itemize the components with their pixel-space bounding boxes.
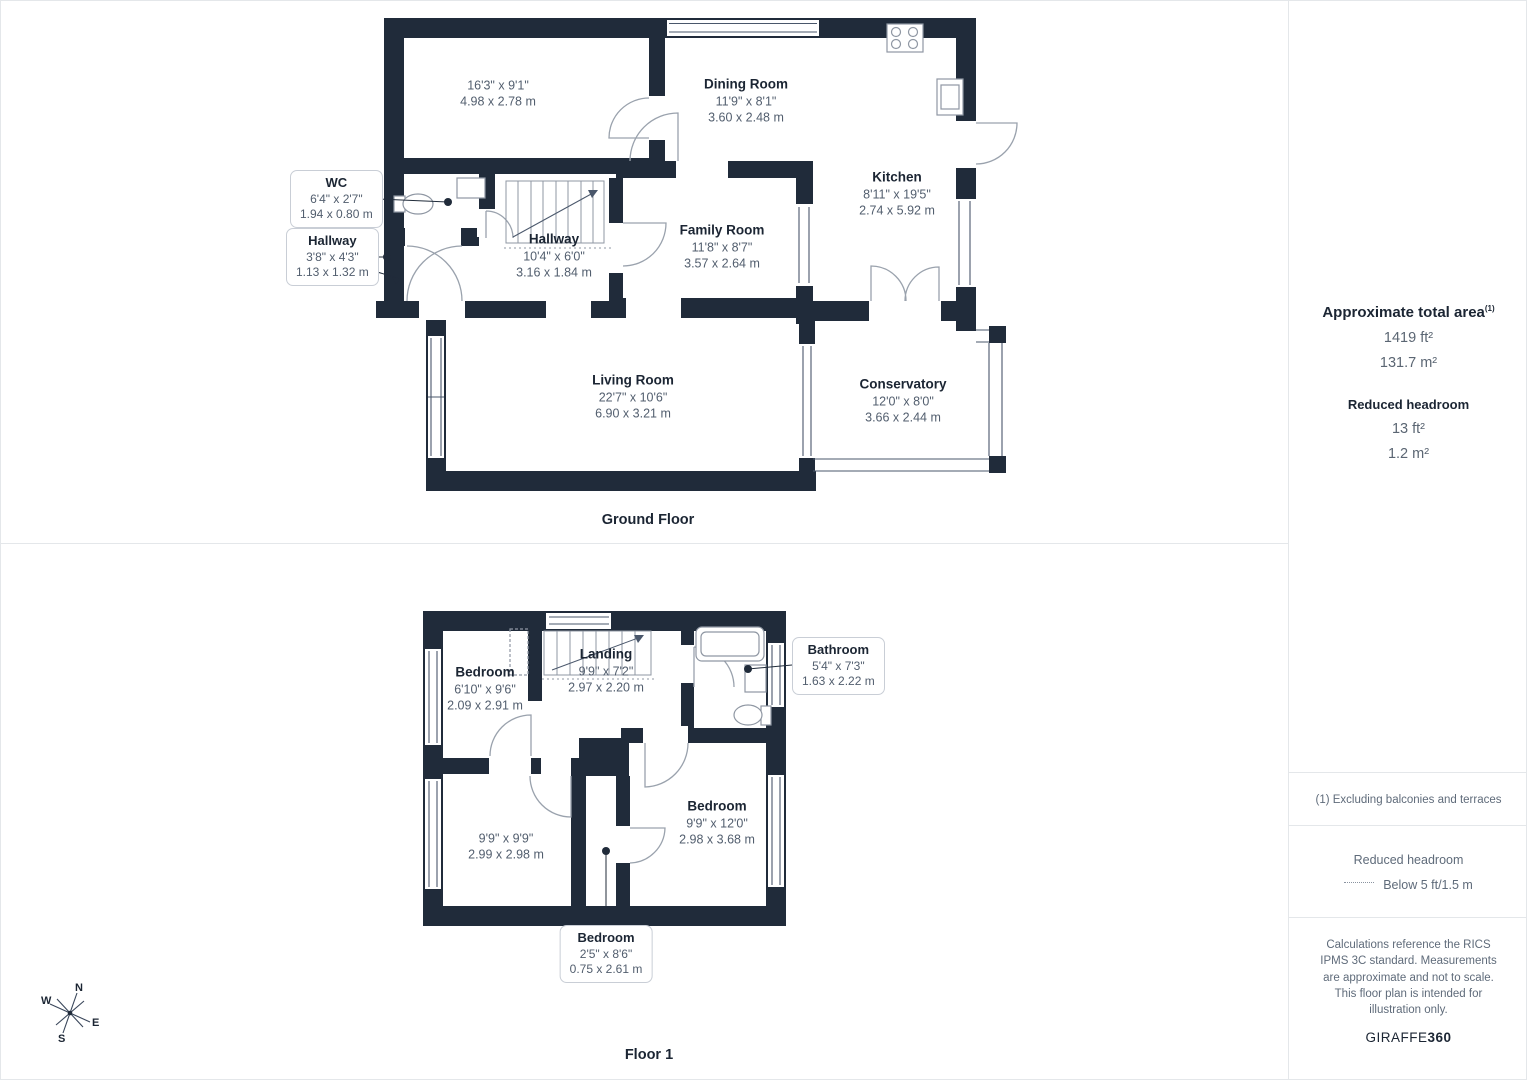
total-area-title: Approximate total area(1) — [1289, 304, 1527, 321]
compass-n: N — [75, 982, 83, 994]
sidebar-divider — [1289, 825, 1527, 826]
dotted-line-icon — [1344, 882, 1374, 883]
giraffe360-logo: GIRAFFE360 — [1289, 1030, 1527, 1045]
f1-leader-lines — [602, 665, 792, 921]
disclaimer-text: Calculations reference the RICS IPMS 3C … — [1317, 937, 1500, 1019]
reduced-headroom-ft: 13 ft² — [1289, 421, 1527, 437]
compass-star — [31, 976, 111, 1056]
room-label-hallway: Hallway 10'4" x 6'0" 3.16 x 1.84 m — [516, 231, 592, 280]
callout-wc: WC 6'4" x 2'7" 1.94 x 0.80 m — [290, 170, 383, 228]
room-label-conservatory: Conservatory 12'0" x 8'0" 3.66 x 2.44 m — [859, 376, 946, 425]
floor1-plan — [1, 543, 1288, 1080]
wc-sink-icon — [457, 178, 485, 198]
area-summary: Approximate total area(1) 1419 ft² 131.7… — [1289, 304, 1527, 462]
legend-title: Reduced headroom — [1289, 853, 1527, 867]
floor1-title: Floor 1 — [625, 1047, 673, 1063]
room-label-dining-room: Dining Room 11'9" x 8'1" 3.60 x 2.48 m — [704, 76, 788, 125]
stove-icon — [887, 24, 923, 52]
callout-bedroom-small: Bedroom 2'5" x 8'6" 0.75 x 2.61 m — [560, 925, 653, 983]
callout-bathroom: Bathroom 5'4" x 7'3" 1.63 x 2.22 m — [792, 637, 885, 695]
reduced-headroom-m: 1.2 m² — [1289, 446, 1527, 462]
room-label-family-room: Family Room 11'8" x 8'7" 3.57 x 2.64 m — [680, 222, 765, 271]
room-label-kitchen: Kitchen 8'11" x 19'5" 2.74 x 5.92 m — [859, 169, 935, 218]
sidebar-divider — [1289, 917, 1527, 918]
room-label-bedroom-bottomright: Bedroom 9'9" x 12'0" 2.98 x 3.68 m — [679, 798, 755, 847]
compass-rose-icon: N W E S — [31, 976, 111, 1056]
compass-s: S — [58, 1033, 65, 1045]
callout-hallway: Hallway 3'8" x 4'3" 1.13 x 1.32 m — [286, 228, 379, 286]
ground-floor-title: Ground Floor — [602, 512, 695, 528]
room-label-living-room: Living Room 22'7" x 10'6" 6.90 x 3.21 m — [592, 372, 674, 421]
room-label-bedroom-topleft: Bedroom 6'10" x 9'6" 2.09 x 2.91 m — [447, 664, 523, 713]
floorplan-page: 16'3" x 9'1" 4.98 x 2.78 m Dining Room 1… — [0, 0, 1527, 1080]
sidebar-divider — [1289, 772, 1527, 773]
compass-e: E — [92, 1017, 99, 1029]
exclusions-note: (1) Excluding balconies and terraces — [1289, 794, 1527, 806]
total-area-m: 131.7 m² — [1289, 355, 1527, 371]
room-label-bedroom-bottomleft: 9'9" x 9'9" 2.99 x 2.98 m — [468, 831, 544, 862]
info-sidebar: Approximate total area(1) 1419 ft² 131.7… — [1288, 1, 1527, 1080]
legend-reduced-headroom: Below 5 ft/1.5 m — [1289, 878, 1527, 892]
total-area-ft: 1419 ft² — [1289, 330, 1527, 346]
compass-w: W — [41, 995, 51, 1007]
ground-floor-plan — [1, 1, 1288, 543]
room-label-landing: Landing 9'9" x 7'2" 2.97 x 2.20 m — [568, 646, 644, 695]
room-label-garage: 16'3" x 9'1" 4.98 x 2.78 m — [460, 78, 536, 109]
reduced-headroom-title: Reduced headroom — [1289, 397, 1527, 412]
